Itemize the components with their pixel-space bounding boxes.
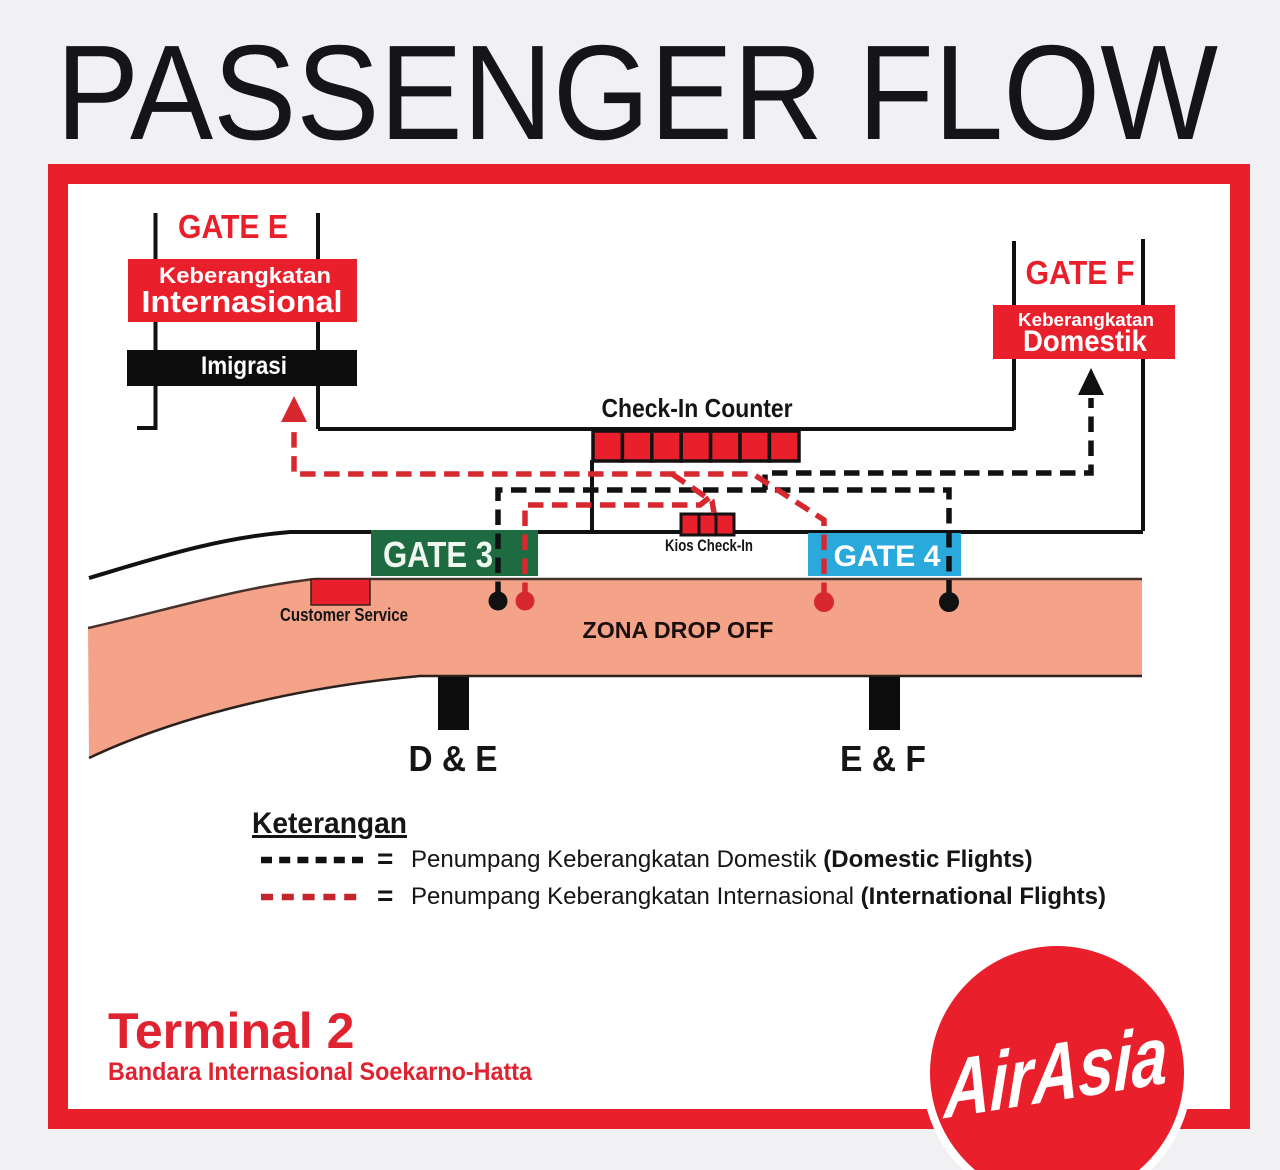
svg-text:GATE 3: GATE 3	[383, 534, 493, 575]
svg-text:Imigrasi: Imigrasi	[201, 352, 287, 380]
svg-text:E & F: E & F	[840, 738, 926, 779]
svg-text:Bandara Internasional Soekarno: Bandara Internasional Soekarno-Hatta	[108, 1058, 533, 1086]
svg-text:Terminal 2: Terminal 2	[108, 1003, 354, 1059]
svg-text:Customer Service: Customer Service	[280, 604, 408, 625]
svg-text:ZONA DROP OFF: ZONA DROP OFF	[583, 617, 774, 643]
svg-text:Keterangan: Keterangan	[252, 807, 407, 840]
svg-text:GATE E: GATE E	[178, 208, 288, 245]
svg-text:GATE F: GATE F	[1026, 254, 1135, 291]
svg-text:Kios Check-In: Kios Check-In	[665, 536, 753, 555]
svg-text:D & E: D & E	[409, 738, 498, 779]
svg-text:PASSENGER FLOW: PASSENGER FLOW	[56, 17, 1218, 168]
svg-text:Domestik: Domestik	[1023, 325, 1147, 358]
svg-text:=: =	[377, 880, 393, 911]
svg-text:Check-In Counter: Check-In Counter	[602, 393, 793, 423]
svg-text:Internasional: Internasional	[142, 284, 343, 319]
svg-text:=: =	[377, 843, 393, 874]
svg-text:GATE 4: GATE 4	[834, 540, 941, 573]
svg-text:Penumpang Keberangkatan Intern: Penumpang Keberangkatan Internasional (I…	[411, 883, 1106, 910]
svg-text:Penumpang Keberangkatan Domest: Penumpang Keberangkatan Domestik (Domest…	[411, 846, 1033, 873]
